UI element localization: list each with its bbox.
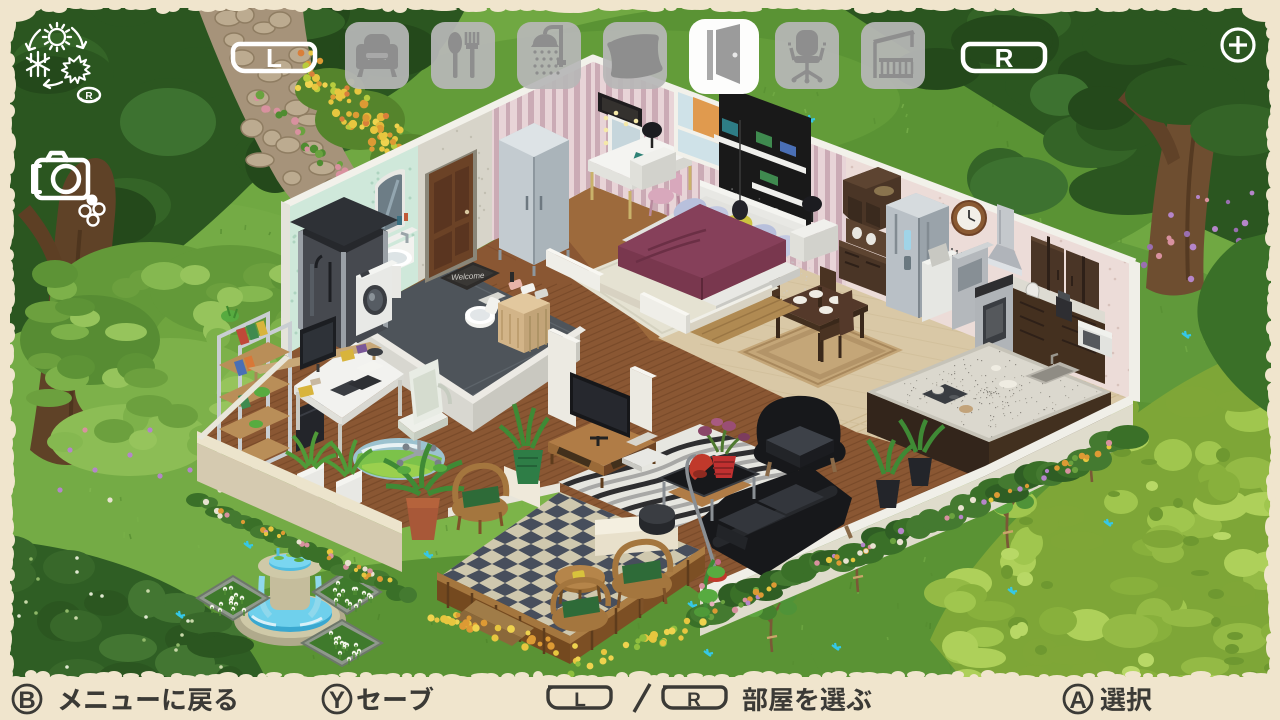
svg-text:R: R: [995, 43, 1014, 73]
svg-text:R: R: [687, 690, 701, 711]
svg-text:Y: Y: [329, 687, 345, 714]
svg-text:L: L: [266, 43, 282, 73]
svg-text:A: A: [1069, 687, 1086, 714]
svg-text:B: B: [18, 687, 35, 714]
svg-text:R: R: [85, 91, 93, 102]
svg-text:L: L: [574, 690, 586, 711]
